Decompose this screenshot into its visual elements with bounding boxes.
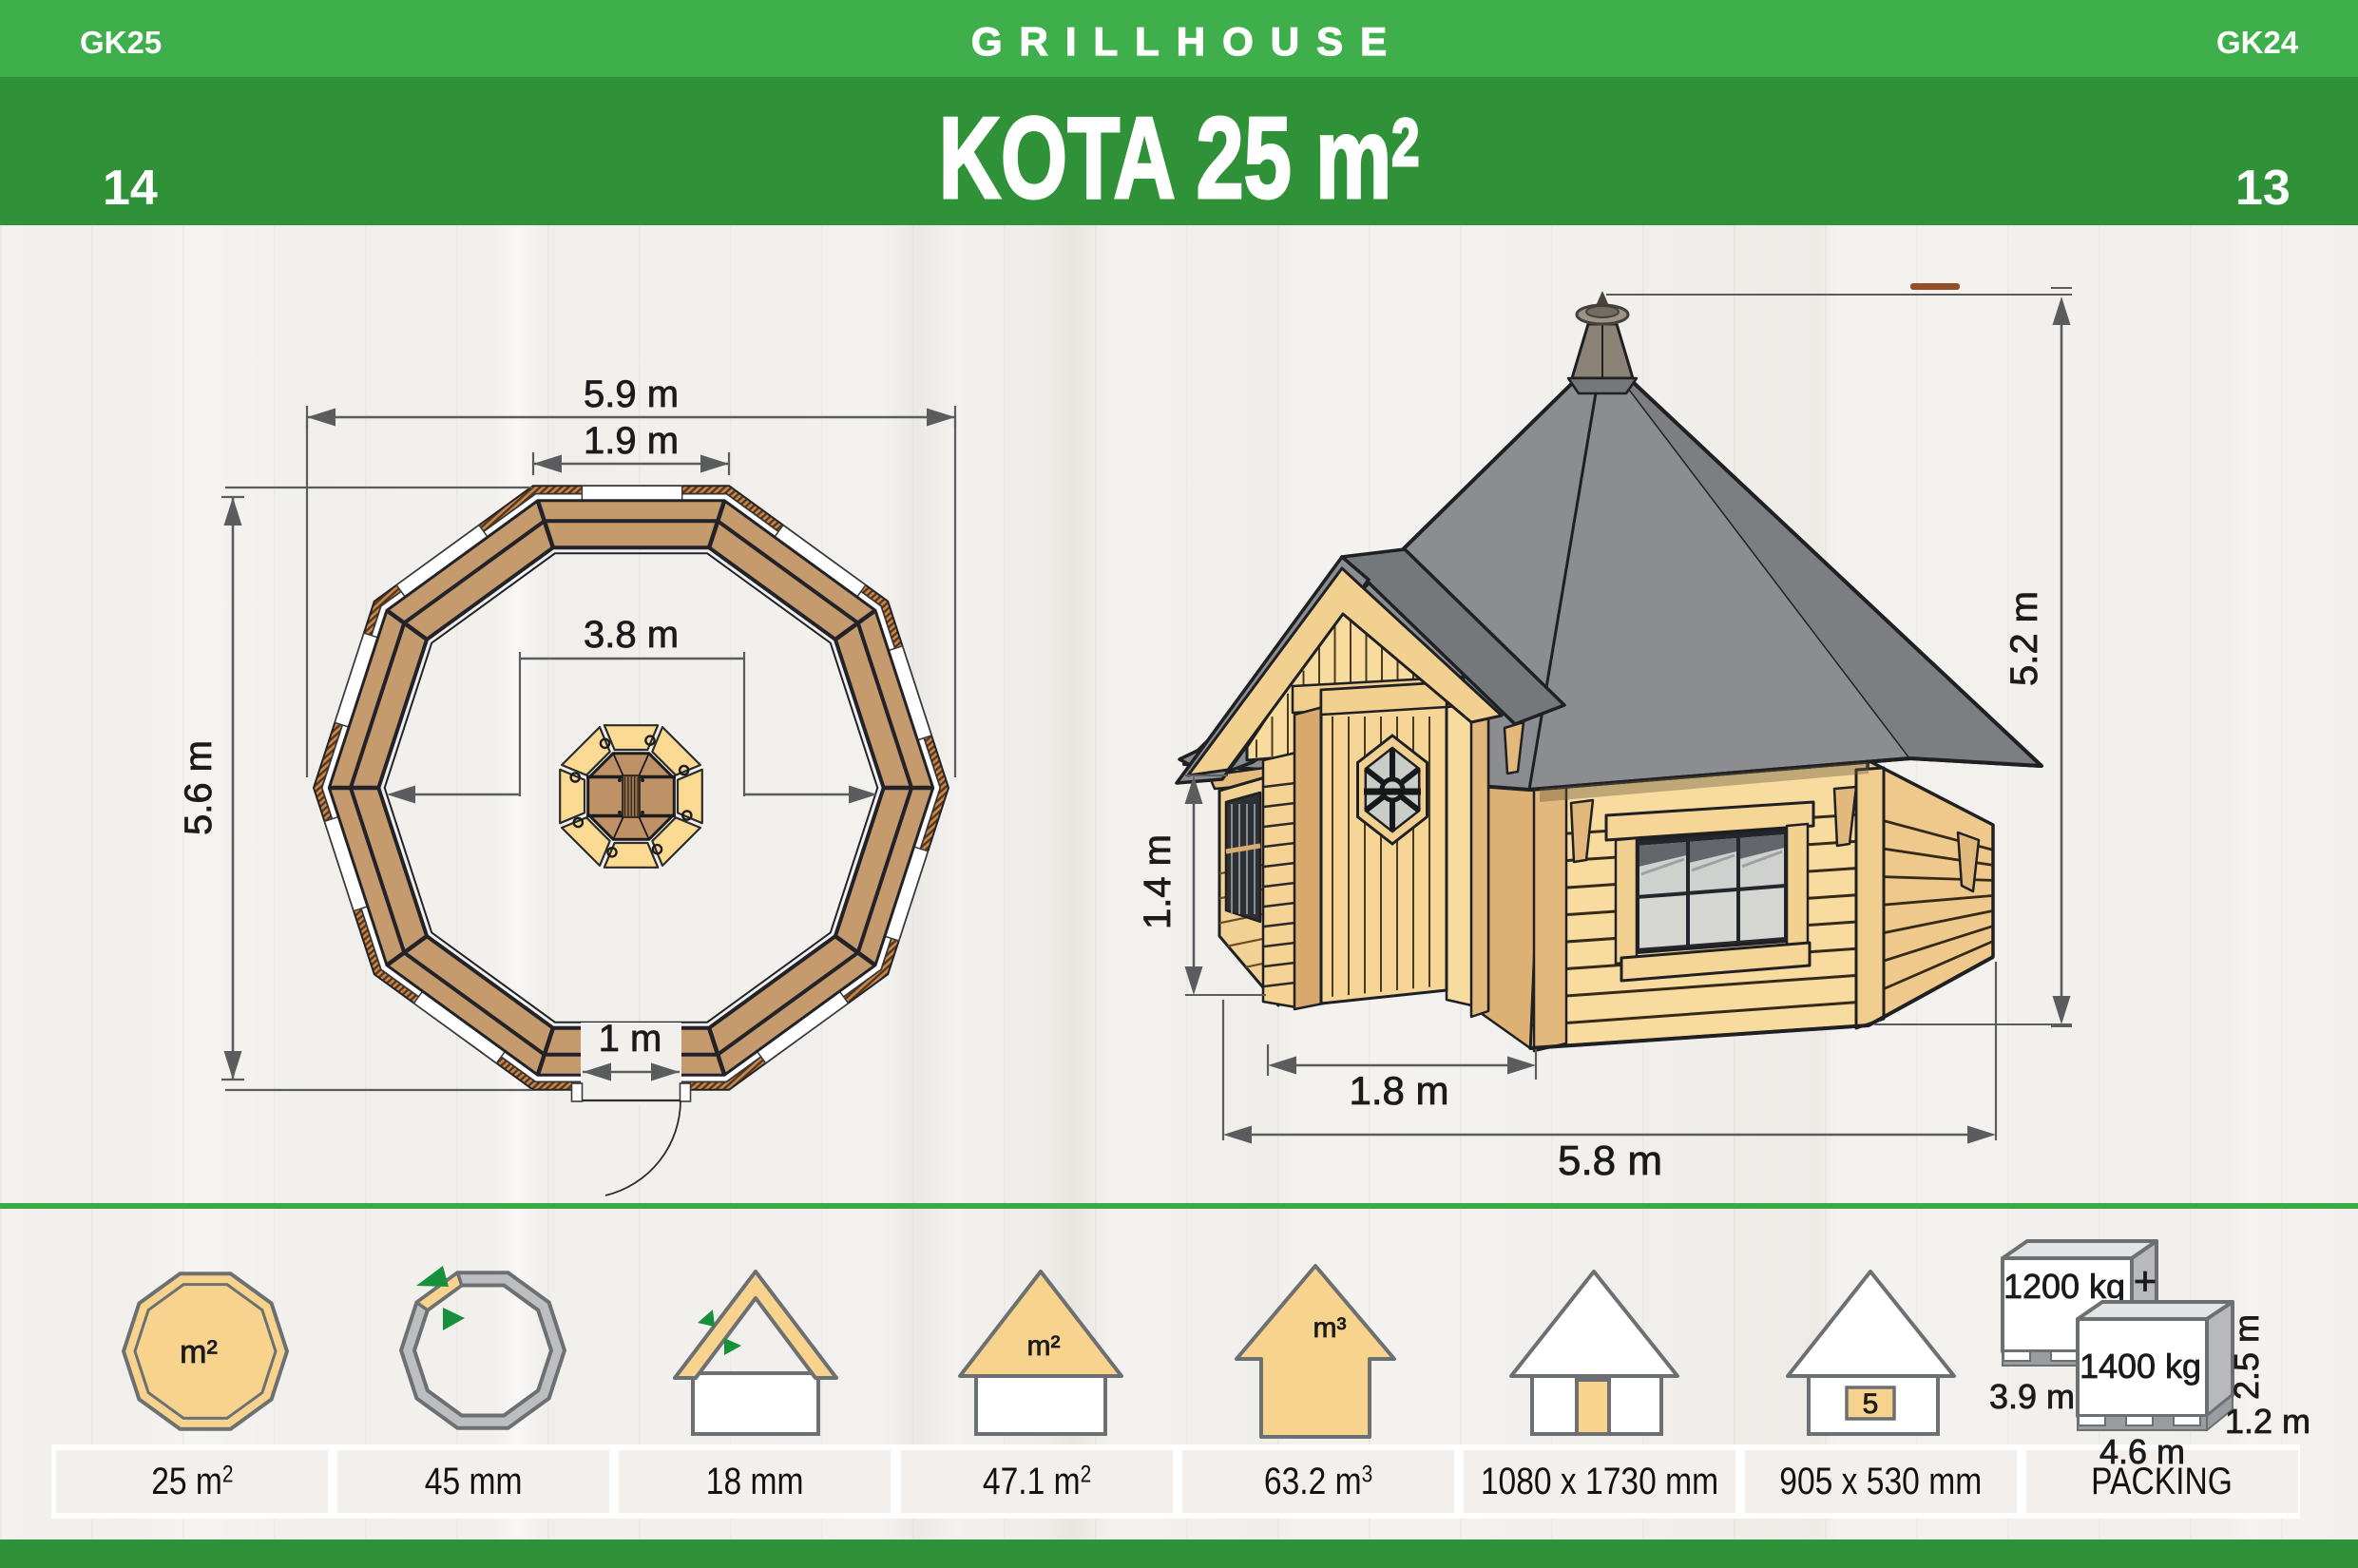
svg-text:5.9 m: 5.9 m bbox=[584, 373, 679, 415]
svg-text:4.6 m: 4.6 m bbox=[2099, 1432, 2185, 1471]
svg-text:m³: m³ bbox=[1313, 1312, 1347, 1344]
svg-text:5: 5 bbox=[1863, 1388, 1879, 1420]
svg-text:1.8 m: 1.8 m bbox=[1349, 1068, 1448, 1113]
svg-text:5.2 m: 5.2 m bbox=[2003, 591, 2045, 686]
svg-text:1.9 m: 1.9 m bbox=[584, 420, 679, 462]
svg-text:1400 kg: 1400 kg bbox=[2080, 1347, 2201, 1386]
svg-text:m²: m² bbox=[180, 1334, 218, 1370]
svg-text:1.4 m: 1.4 m bbox=[1137, 834, 1179, 929]
svg-text:3.8 m: 3.8 m bbox=[584, 614, 679, 656]
svg-text:5.8 m: 5.8 m bbox=[1558, 1138, 1662, 1184]
svg-text:3.9 m: 3.9 m bbox=[1989, 1377, 2075, 1416]
svg-text:5.6 m: 5.6 m bbox=[178, 740, 220, 835]
svg-text:+: + bbox=[2134, 1258, 2157, 1303]
svg-text:m²: m² bbox=[1027, 1330, 1061, 1362]
svg-text:1200 kg: 1200 kg bbox=[2003, 1267, 2125, 1306]
svg-text:1 m: 1 m bbox=[599, 1018, 662, 1060]
svg-text:1.2 m: 1.2 m bbox=[2225, 1402, 2310, 1441]
svg-text:2.5 m: 2.5 m bbox=[2227, 1314, 2266, 1400]
